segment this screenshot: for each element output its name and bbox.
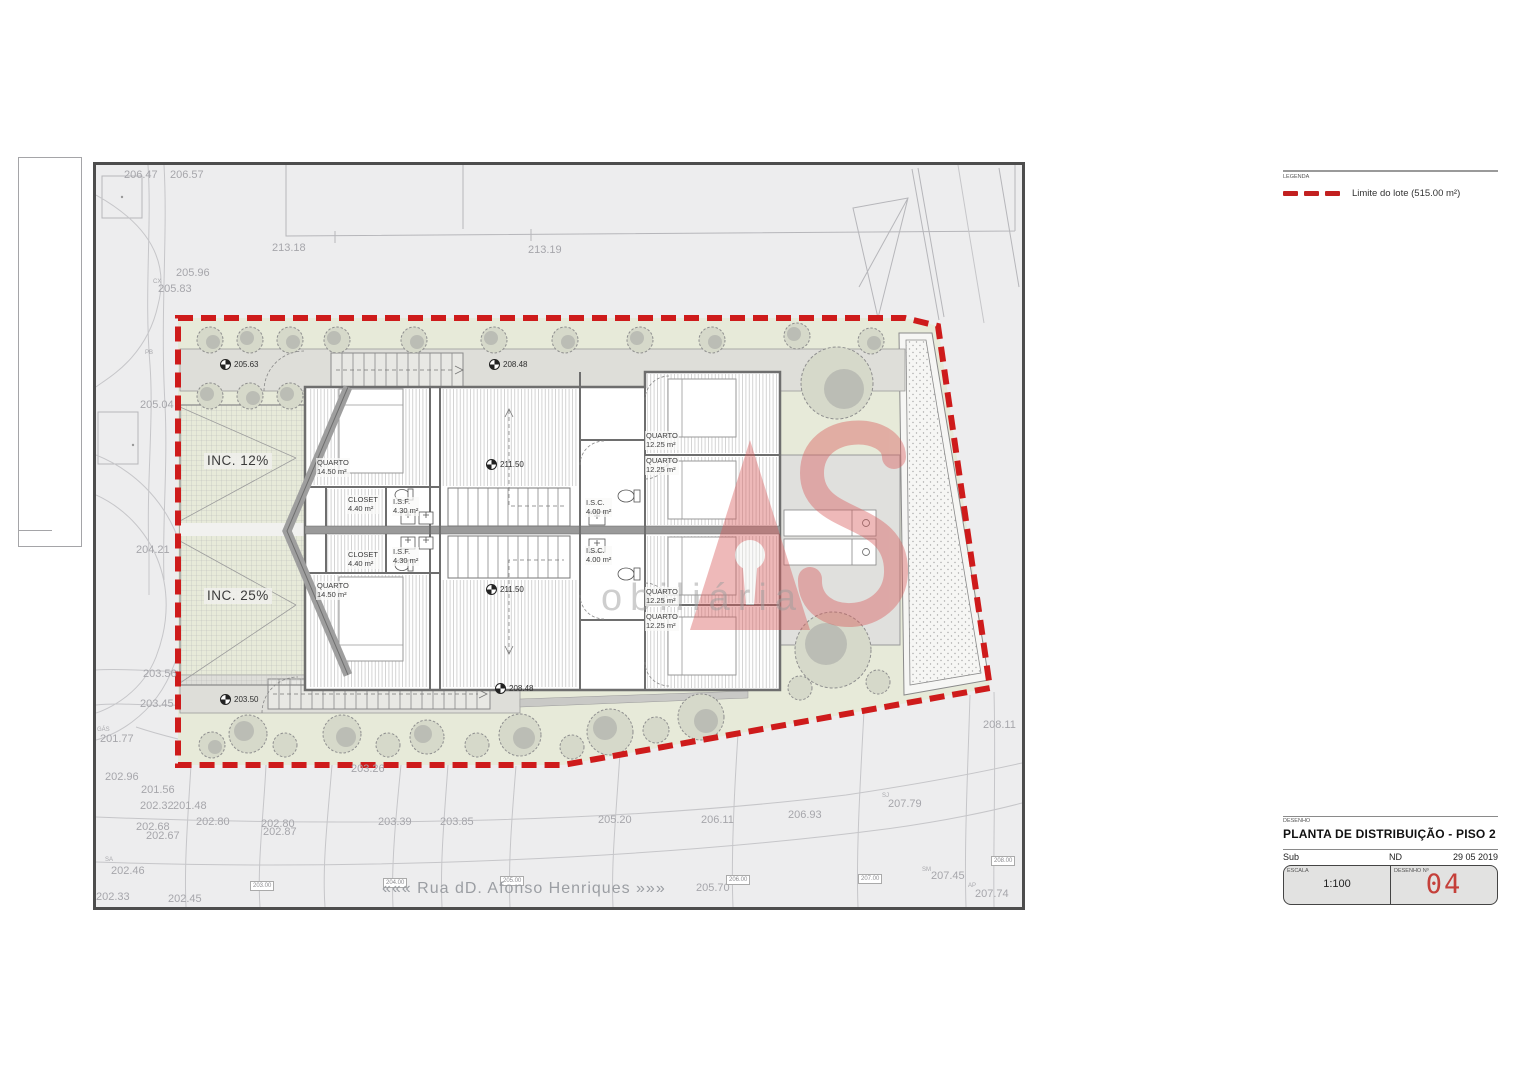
level-value: 203.50 <box>234 695 258 704</box>
room-name: QUARTO <box>646 431 678 440</box>
elevation-label: 206.93 <box>788 810 822 821</box>
elevation-label: 205.96 <box>176 268 210 279</box>
elevation-label: 202.45 <box>168 894 202 905</box>
level-marker: 211.50 <box>486 584 524 595</box>
room-name: QUARTO <box>317 581 349 590</box>
title-divider <box>1283 849 1498 850</box>
room-area: 4.40 m² <box>348 559 378 568</box>
room-label: QUARTO 12.25 m² <box>645 612 679 631</box>
level-value: 208.48 <box>503 360 527 369</box>
legend-dash-icon <box>1283 191 1298 196</box>
room-label: CLOSET 4.40 m² <box>347 550 379 569</box>
elevation-label: 205.20 <box>598 815 632 826</box>
room-label: CLOSET 4.40 m² <box>347 495 379 514</box>
contour-label: 206.00 <box>726 875 750 885</box>
room-area: 14.50 m² <box>317 467 349 476</box>
room-name: I.S.F. <box>393 497 418 506</box>
elevation-label: 205.04 <box>140 400 174 411</box>
level-marker: 208.48 <box>495 683 533 694</box>
legend: LEGENDA Limite do lote (515.00 m²) <box>1283 170 1498 199</box>
level-value: 211.50 <box>500 585 524 594</box>
elevation-label: 206.57 <box>170 170 204 181</box>
elevation-label: 207.79 <box>888 799 922 810</box>
benchmark-icon <box>486 459 497 470</box>
sheet-margin-box <box>18 157 82 547</box>
scale-cell: ESCALA 1:100 <box>1284 866 1390 904</box>
benchmark-icon <box>489 359 500 370</box>
street-label: ««« Rua dD. Afonso Henriques »»» <box>382 880 666 898</box>
level-value: 211.50 <box>500 460 524 469</box>
elevation-label: 202.80 <box>196 817 230 828</box>
room-label: QUARTO 12.25 m² <box>645 456 679 475</box>
room-name: I.S.F. <box>393 547 418 556</box>
elevation-label: 203.56 <box>143 669 177 680</box>
scale-value: 1:100 <box>1284 878 1390 890</box>
watermark-text: obiliária <box>601 577 804 620</box>
legend-title: LEGENDA <box>1283 174 1498 180</box>
level-value: 205.63 <box>234 360 258 369</box>
level-marker: 205.63 <box>220 359 258 370</box>
room-name: I.S.C. <box>586 498 611 507</box>
room-area: 4.40 m² <box>348 504 378 513</box>
room-label: QUARTO 12.25 m² <box>645 431 679 450</box>
access-ramp <box>180 405 305 685</box>
legend-item-label: Limite do lote (515.00 m²) <box>1352 188 1460 199</box>
contour-label: 203.00 <box>250 881 274 891</box>
legend-dash-icon <box>1325 191 1340 196</box>
site-plan-frame: obiliária 206.47 206.57 213.18 213.19 20… <box>93 162 1025 910</box>
nd-label: ND <box>1389 852 1453 862</box>
scale-label: ESCALA <box>1287 868 1309 874</box>
room-label: QUARTO 14.50 m² <box>316 458 350 477</box>
legend-dash-icon <box>1304 191 1319 196</box>
room-name: QUARTO <box>317 458 349 467</box>
room-area: 4.00 m² <box>586 507 611 516</box>
room-area: 12.25 m² <box>646 596 678 605</box>
room-area: 4.30 m² <box>393 556 418 565</box>
room-label: I.S.C. 4.00 m² <box>585 546 612 565</box>
level-marker: 211.50 <box>486 459 524 470</box>
sub-label: Sub <box>1283 852 1389 862</box>
room-label: QUARTO 14.50 m² <box>316 581 350 600</box>
margin-tick <box>18 530 52 531</box>
elevation-label: 205.70 <box>696 883 730 894</box>
room-name: CLOSET <box>348 550 378 559</box>
elevation-label: 213.19 <box>528 245 562 256</box>
level-marker: 208.48 <box>489 359 527 370</box>
level-marker: 203.50 <box>220 694 258 705</box>
elevation-label: 207.45 <box>931 871 965 882</box>
drawing-number-cell: DESENHO Nº 04 <box>1390 866 1497 904</box>
title-meta-row: Sub ND 29 05 2019 <box>1283 852 1498 862</box>
contour-label: 207.00 <box>858 874 882 884</box>
elevation-label: 201.48 <box>173 801 207 812</box>
room-area: 12.25 m² <box>646 621 678 630</box>
room-label: I.S.F. 4.30 m² <box>392 547 419 566</box>
survey-code: SJ <box>882 793 889 799</box>
drawing-title: PLANTA DE DISTRIBUIÇÃO - PISO 2 <box>1283 827 1498 841</box>
elevation-label: 201.77 <box>100 734 134 745</box>
survey-code: AP <box>968 883 976 889</box>
drawing-number-value: 04 <box>1391 869 1497 900</box>
elevation-label: 213.18 <box>272 243 306 254</box>
elevation-label: 208.11 <box>983 720 1016 731</box>
elevation-label: 203.85 <box>440 817 474 828</box>
benchmark-icon <box>495 683 506 694</box>
room-area: 4.30 m² <box>393 506 418 515</box>
contour-label: 208.00 <box>991 856 1015 866</box>
drawing-sheet: obiliária 206.47 206.57 213.18 213.19 20… <box>0 0 1527 1080</box>
survey-code: SM <box>922 867 931 873</box>
benchmark-icon <box>486 584 497 595</box>
elevation-label: 202.32 <box>140 801 174 812</box>
room-label: QUARTO 12.25 m² <box>645 587 679 606</box>
elevation-label: 206.47 <box>124 170 158 181</box>
survey-code: GÁS <box>97 727 110 733</box>
elevation-label: 202.96 <box>105 772 139 783</box>
level-value: 208.48 <box>509 684 533 693</box>
benchmark-icon <box>220 694 231 705</box>
elevation-label: 207.74 <box>975 889 1009 900</box>
elevation-label: 202.46 <box>111 866 145 877</box>
room-name: I.S.C. <box>586 546 611 555</box>
elevation-label: 204.21 <box>136 545 170 556</box>
survey-code: SA <box>105 857 113 863</box>
elevation-label: 203.45 <box>140 699 174 710</box>
title-divider <box>1283 816 1498 817</box>
room-area: 12.25 m² <box>646 440 678 449</box>
drawing-section-label: DESENHO <box>1283 818 1498 824</box>
elevation-label: 203.26 <box>351 764 385 775</box>
legend-divider <box>1283 170 1498 172</box>
drawing-date: 29 05 2019 <box>1453 852 1498 862</box>
room-area: 12.25 m² <box>646 465 678 474</box>
room-name: CLOSET <box>348 495 378 504</box>
room-label: I.S.C. 4.00 m² <box>585 498 612 517</box>
room-name: QUARTO <box>646 587 678 596</box>
scale-box: ESCALA 1:100 DESENHO Nº 04 <box>1283 865 1498 905</box>
title-block: DESENHO PLANTA DE DISTRIBUIÇÃO - PISO 2 … <box>1283 816 1498 905</box>
benchmark-icon <box>220 359 231 370</box>
elevation-label: 203.39 <box>378 817 412 828</box>
lot-boundary-sample <box>1283 191 1340 196</box>
building <box>287 372 780 690</box>
legend-item: Limite do lote (515.00 m²) <box>1283 188 1498 199</box>
room-label: I.S.F. 4.30 m² <box>392 497 419 516</box>
elevation-label: 205.83 <box>158 284 192 295</box>
elevation-label: 201.56 <box>141 785 175 796</box>
elevation-label: 202.67 <box>146 831 180 842</box>
elevation-label: 202.33 <box>96 892 130 903</box>
ramp-label: INC. 25% <box>204 588 272 604</box>
room-name: QUARTO <box>646 456 678 465</box>
ramp-label: INC. 12% <box>204 453 272 469</box>
survey-code: PB <box>145 350 153 356</box>
elevation-label: 206.11 <box>701 815 734 826</box>
survey-code: CX <box>153 279 161 285</box>
room-name: QUARTO <box>646 612 678 621</box>
elevation-label: 202.87 <box>263 827 297 838</box>
room-area: 14.50 m² <box>317 590 349 599</box>
room-area: 4.00 m² <box>586 555 611 564</box>
